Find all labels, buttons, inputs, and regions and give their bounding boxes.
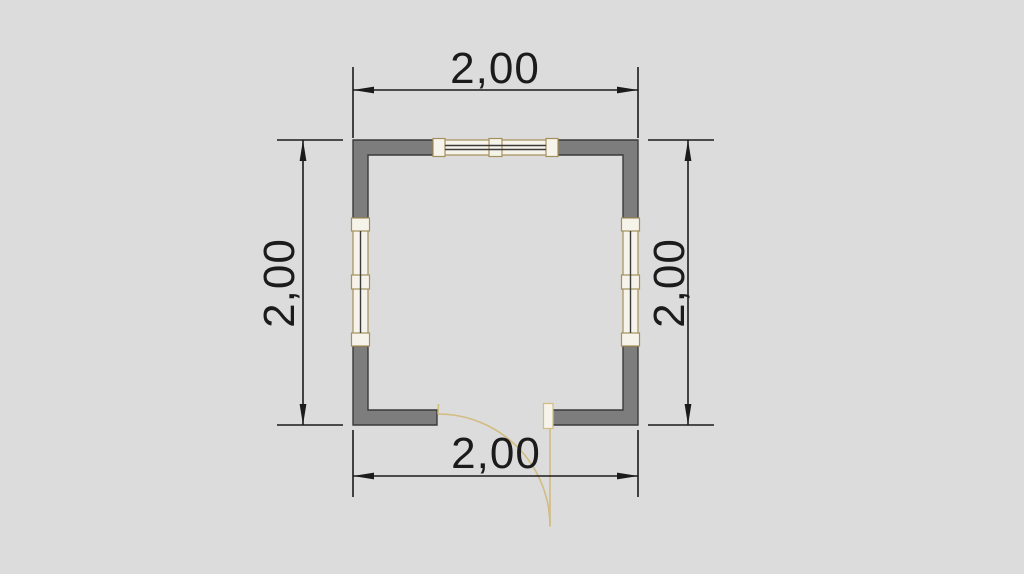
wall-corner-top-right bbox=[558, 140, 638, 218]
window-left-post-top bbox=[352, 218, 370, 231]
door-frame-post-right bbox=[544, 404, 554, 429]
dimension-bottom: 2,00 bbox=[353, 429, 638, 497]
window-top-post-middle bbox=[489, 139, 502, 157]
window-top-post-left bbox=[433, 139, 445, 157]
dimension-bottom-arrow-right bbox=[617, 473, 638, 480]
dimension-left-arrow-top bbox=[300, 140, 307, 161]
dimension-right-arrow-top bbox=[685, 140, 692, 161]
door-jamb-line-left bbox=[438, 404, 439, 414]
wall-corner-top-left bbox=[353, 140, 433, 218]
window-right-post-top bbox=[622, 218, 640, 231]
dimension-left-arrow-bottom bbox=[300, 404, 307, 425]
wall-corner-bottom-right bbox=[552, 346, 638, 425]
window-left-post-bottom bbox=[352, 333, 370, 346]
window-left bbox=[352, 218, 370, 346]
dimension-right-label: 2,00 bbox=[645, 238, 694, 328]
dimension-left-label: 2,00 bbox=[255, 238, 304, 328]
window-top-post-right bbox=[546, 139, 558, 157]
dimension-top-arrow-left bbox=[353, 87, 374, 94]
walls bbox=[353, 140, 638, 425]
dimension-top: 2,00 bbox=[353, 44, 638, 138]
window-right bbox=[622, 218, 640, 346]
dimension-right: 2,00 bbox=[645, 140, 714, 425]
dimension-bottom-arrow-left bbox=[353, 473, 374, 480]
dimension-top-arrow-right bbox=[617, 87, 638, 94]
window-right-post-bottom bbox=[622, 333, 640, 346]
floor-plan-canvas: 2,00 2,00 2,00 2,00 bbox=[0, 0, 1024, 574]
dimension-top-label: 2,00 bbox=[450, 44, 540, 93]
dimension-left: 2,00 bbox=[255, 140, 343, 425]
dimension-right-arrow-bottom bbox=[685, 404, 692, 425]
window-top bbox=[433, 139, 558, 157]
wall-corner-bottom-left bbox=[353, 346, 437, 425]
dimension-bottom-label: 2,00 bbox=[451, 429, 541, 478]
